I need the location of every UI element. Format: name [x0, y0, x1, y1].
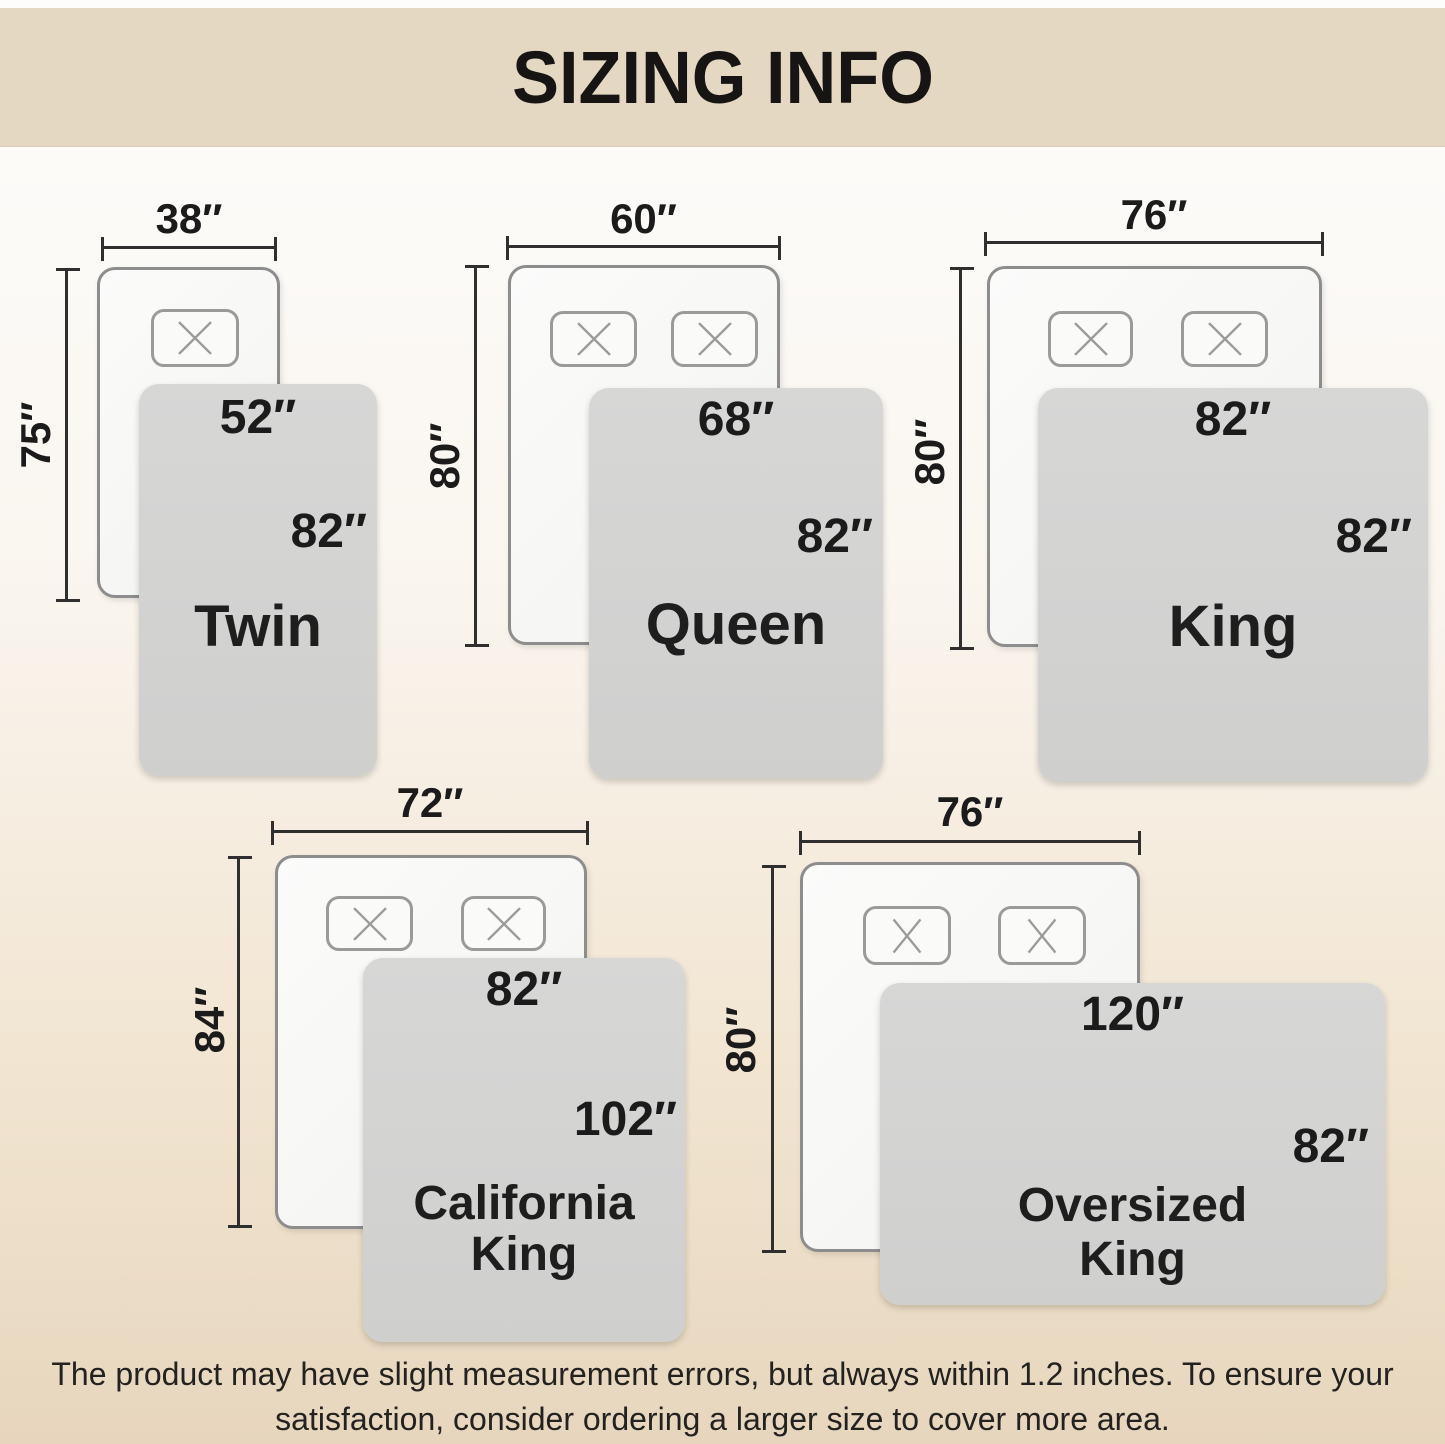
king-blanket: 82″ 82″ King — [1038, 388, 1428, 782]
queen-mattress-height-label: 80″ — [422, 416, 468, 496]
pillow-icon — [1048, 311, 1133, 367]
california-king-width-dimension-line — [272, 830, 588, 833]
twin-blanket: 52″ 82″ Twin — [139, 384, 377, 776]
queen-height-dimension-line — [474, 266, 477, 646]
oversized-king-blanket-width-label: 120″ — [880, 989, 1385, 1041]
queen-blanket-height-label: 82″ — [589, 511, 883, 563]
twin-height-dimension-line — [65, 269, 68, 601]
california-king-height-dimension-line — [237, 857, 240, 1227]
oversized-king-blanket: 120″ 82″ Oversized King — [880, 983, 1385, 1305]
oversized-king-width-dimension-line — [800, 840, 1140, 843]
pillow-cross-icon — [479, 902, 529, 946]
twin-width-dimension-line — [102, 246, 276, 249]
king-mattress-height-label: 80″ — [907, 412, 953, 492]
oversized-king-mattress-height-label: 80″ — [718, 1000, 764, 1080]
queen-width-dimension-line — [507, 245, 780, 248]
pillow-icon — [151, 309, 239, 367]
queen-size-name: Queen — [589, 594, 883, 656]
king-height-dimension-line — [959, 268, 962, 649]
twin-blanket-width-label: 52″ — [139, 392, 377, 444]
pillow-icon — [863, 906, 951, 965]
oversized-king-blanket-height-label: 82″ — [880, 1121, 1385, 1173]
king-size-name: King — [1038, 596, 1428, 658]
california-king-blanket-width-label: 82″ — [363, 964, 685, 1016]
twin-blanket-height-label: 82″ — [139, 506, 377, 558]
pillow-cross-icon — [1066, 317, 1116, 361]
king-mattress-width-label: 76″ — [985, 192, 1323, 238]
pillow-cross-icon — [569, 317, 619, 361]
pillow-cross-icon — [345, 902, 395, 946]
twin-mattress-height-label: 75″ — [13, 395, 59, 475]
footer-note: The product may have slight measurement … — [48, 1352, 1398, 1442]
queen-mattress-width-label: 60″ — [507, 196, 780, 242]
pillow-cross-icon — [883, 913, 931, 959]
california-king-blanket-height-label: 102″ — [363, 1094, 685, 1146]
pillow-icon — [461, 896, 546, 951]
pillow-cross-icon — [170, 316, 220, 360]
sizing-info-graphic: SIZING INFO 38″ 75″ 52″ 82″ Twin 60″ 80″ — [0, 0, 1445, 1444]
oversized-king-size-name: Oversized King — [880, 1179, 1385, 1287]
pillow-icon — [1181, 311, 1268, 367]
king-width-dimension-line — [985, 241, 1323, 244]
queen-blanket-width-label: 68″ — [589, 394, 883, 446]
pillow-cross-icon — [1200, 317, 1250, 361]
title-banner: SIZING INFO — [0, 8, 1445, 147]
twin-mattress-width-label: 38″ — [102, 196, 276, 242]
pillow-icon — [671, 311, 758, 367]
california-king-mattress-width-label: 72″ — [272, 780, 588, 826]
oversized-king-height-dimension-line — [771, 866, 774, 1252]
california-king-mattress-height-label: 84″ — [187, 980, 233, 1060]
king-blanket-height-label: 82″ — [1038, 511, 1428, 563]
queen-blanket: 68″ 82″ Queen — [589, 388, 883, 779]
king-blanket-width-label: 82″ — [1038, 394, 1428, 446]
page-title: SIZING INFO — [512, 35, 934, 120]
pillow-cross-icon — [1018, 913, 1066, 959]
california-king-blanket: 82″ 102″ California King — [363, 958, 685, 1342]
pillow-cross-icon — [690, 317, 740, 361]
pillow-icon — [326, 896, 413, 951]
pillow-icon — [998, 906, 1086, 965]
oversized-king-mattress-width-label: 76″ — [800, 789, 1140, 835]
pillow-icon — [550, 311, 637, 367]
twin-size-name: Twin — [139, 596, 377, 658]
california-king-size-name: California King — [363, 1178, 685, 1280]
